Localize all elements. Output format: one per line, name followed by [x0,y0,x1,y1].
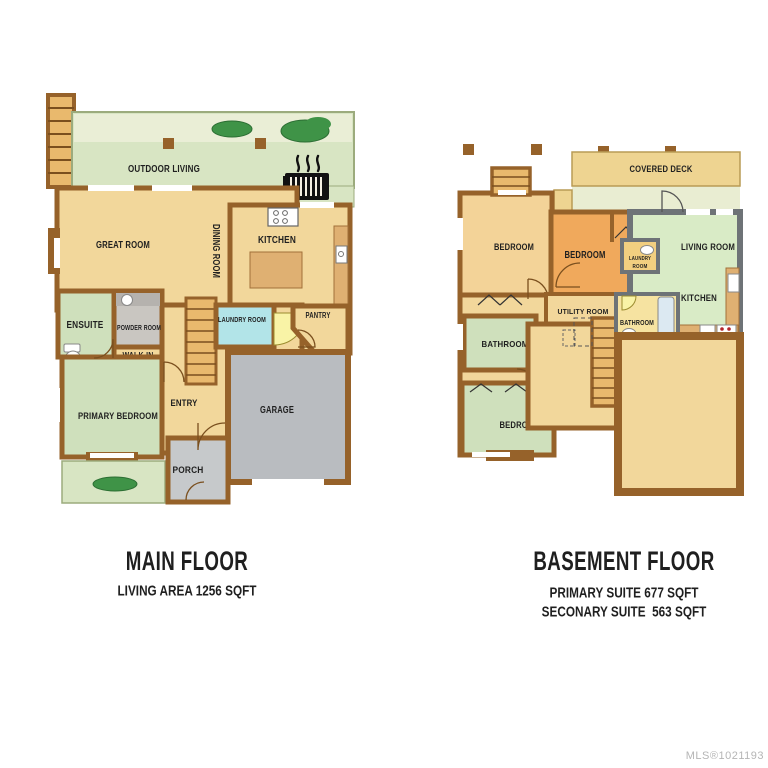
main-floor-subtitle: LIVING AREA 1256 SQFT [61,581,313,598]
basement-subtitle-primary: PRIMARY SUITE 677 SQFT [498,583,750,600]
deck-post [463,144,474,155]
sink-icon [122,295,133,306]
room-covered-deck: COVERED DECK [554,152,740,213]
bedroom-left-label: BEDROOM [494,242,534,253]
entry-label: ENTRY [171,398,198,409]
mls-watermark: MLS®1021193 [686,750,764,762]
room-powder: POWDER ROOM [114,291,162,347]
basement-floor-plan: COVERED DECK BEDROOM BATHROOM [450,135,750,525]
deck-post [163,138,174,149]
ensuite-label: ENSUITE [67,320,104,331]
room-garage: GARAGE [228,352,348,482]
bush-icon [93,477,137,491]
kitchen-island [250,252,302,288]
basement-floor-title-block: BASEMENT FLOOR PRIMARY SUITE 677 SQFT SE… [474,548,768,619]
great-room-label: GREAT ROOM [96,240,150,251]
covered-deck-label: COVERED DECK [630,164,693,175]
bathroom-left-label: BATHROOM [482,339,529,349]
living-room-label: LIVING ROOM [681,242,735,253]
outdoor-living-label: OUTDOOR LIVING [128,164,200,175]
powder-room-label: POWDER ROOM [117,323,161,332]
room-bedroom-left: BEDROOM [460,168,552,305]
pantry-label: PANTRY [306,311,331,320]
basement-subtitle-secondary: SECONARY SUITE 563 SQFT [498,602,750,619]
basement-kitchen-label: KITCHEN [681,293,717,303]
garage-label: GARAGE [260,405,294,416]
deck-step [554,190,572,212]
main-floor-title: MAIN FLOOR [70,546,304,577]
main-floor-plan: OUTDOOR LIVING GREAT ROOM DINING ROOM KI… [40,85,360,515]
bush-icon [212,121,252,137]
laundry-room-label: LAUNDRY ROOM [218,315,266,324]
room-primary-bedroom: PRIMARY BEDROOM [62,357,162,463]
sink-icon [728,274,739,292]
bedroom-middle-label: BEDROOM [565,250,606,261]
basement-laundry-label-line1: LAUNDRY [629,256,651,262]
dining-room-label: DINING ROOM [210,224,221,278]
sink-icon [336,246,347,263]
room-basement-laundry: LAUNDRY ROOM [622,240,658,272]
stairs-icon [186,298,216,384]
basement-floor-title: BASEMENT FLOOR [507,546,741,577]
room-bathroom-left: BATHROOM [464,316,536,370]
deck-post [255,138,266,149]
utility-room-label: UTILITY ROOM [558,307,609,316]
stove-icon [268,208,298,226]
sink-icon [641,246,654,255]
porch-label: PORCH [173,465,204,476]
kitchen-label: KITCHEN [258,235,296,246]
basement-laundry-label-line2: ROOM [633,264,648,270]
deck-stairs-icon [48,95,74,187]
main-floor-title-block: MAIN FLOOR LIVING AREA 1256 SQFT [37,548,337,598]
deck-post [531,144,542,155]
yard [62,461,165,503]
bathroom-middle-label: BATHROOM [620,320,654,327]
floor-plan-sheet: OUTDOOR LIVING GREAT ROOM DINING ROOM KI… [0,0,768,768]
room-unfinished [618,336,740,492]
primary-bedroom-label: PRIMARY BEDROOM [78,411,158,422]
